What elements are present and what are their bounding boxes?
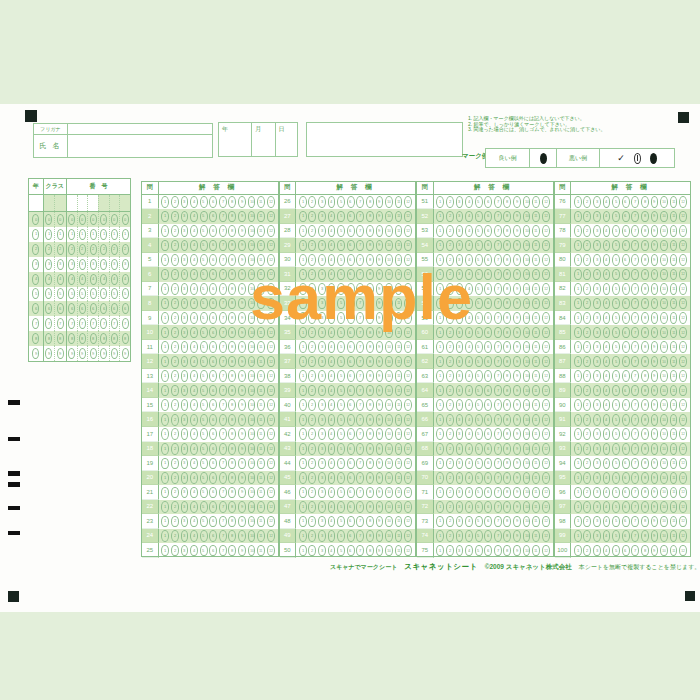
answer-bubble[interactable]: 1 — [574, 458, 582, 470]
answer-bubble[interactable]: 3 — [181, 254, 189, 266]
answer-bubble[interactable]: 8 — [366, 385, 374, 397]
answer-bubble[interactable]: 4 — [190, 545, 198, 557]
answer-bubble[interactable]: 6 — [622, 341, 630, 353]
answer-bubble[interactable]: 8 — [641, 545, 649, 557]
answer-bubble[interactable]: 7 — [494, 399, 502, 411]
answer-bubble[interactable]: 9 — [651, 196, 659, 208]
answer-bubble[interactable]: 9 — [513, 211, 521, 223]
answer-bubble[interactable]: 12 — [542, 458, 550, 470]
answer-bubble[interactable]: 6 — [209, 458, 217, 470]
answer-bubble[interactable]: 1 — [436, 196, 444, 208]
answer-bubble[interactable]: 5 — [200, 458, 208, 470]
answer-bubble[interactable]: 10 — [523, 458, 531, 470]
answer-bubble[interactable]: 6 — [209, 370, 217, 382]
digit-bubble[interactable]: 2 — [79, 244, 86, 255]
answer-bubble[interactable]: 5 — [612, 341, 620, 353]
answer-bubble[interactable]: 9 — [513, 312, 521, 324]
answer-bubble[interactable]: 7 — [631, 254, 639, 266]
digit-bubble[interactable]: 9 — [45, 348, 52, 359]
answer-bubble[interactable]: 5 — [612, 428, 620, 440]
answer-bubble[interactable]: 9 — [513, 458, 521, 470]
answer-bubble[interactable]: 7 — [494, 196, 502, 208]
answer-bubble[interactable]: 12 — [267, 356, 275, 368]
answer-bubble[interactable]: 10 — [385, 341, 393, 353]
answer-bubble[interactable]: 1 — [299, 385, 307, 397]
answer-bubble[interactable]: 3 — [456, 414, 464, 426]
answer-bubble[interactable]: 1 — [299, 458, 307, 470]
answer-bubble[interactable]: 3 — [181, 240, 189, 252]
answer-bubble[interactable]: 2 — [583, 298, 591, 310]
digit-bubble[interactable]: 9 — [100, 348, 107, 359]
answer-bubble[interactable]: 2 — [171, 545, 179, 557]
answer-bubble[interactable]: 10 — [523, 487, 531, 499]
answer-bubble[interactable]: 7 — [219, 458, 227, 470]
answer-bubble[interactable]: 7 — [494, 341, 502, 353]
answer-bubble[interactable]: 2 — [171, 356, 179, 368]
answer-bubble[interactable]: 11 — [257, 516, 265, 528]
answer-bubble[interactable]: 11 — [257, 443, 265, 455]
answer-bubble[interactable]: 2 — [583, 269, 591, 281]
answer-bubble[interactable]: 1 — [436, 516, 444, 528]
answer-bubble[interactable]: 2 — [446, 545, 454, 557]
answer-bubble[interactable]: 9 — [376, 370, 384, 382]
answer-bubble[interactable]: 3 — [181, 487, 189, 499]
answer-bubble[interactable]: 10 — [248, 414, 256, 426]
answer-bubble[interactable]: 7 — [631, 341, 639, 353]
answer-bubble[interactable]: 6 — [622, 283, 630, 295]
answer-bubble[interactable]: 3 — [181, 385, 189, 397]
answer-bubble[interactable]: 5 — [612, 487, 620, 499]
answer-bubble[interactable]: 6 — [484, 196, 492, 208]
answer-bubble[interactable]: 9 — [513, 472, 521, 484]
answer-bubble[interactable]: 11 — [670, 530, 678, 542]
answer-bubble[interactable]: 6 — [209, 196, 217, 208]
answer-bubble[interactable]: 12 — [267, 516, 275, 528]
digit-bubble[interactable]: 7 — [111, 318, 118, 329]
answer-bubble[interactable]: 5 — [200, 443, 208, 455]
answer-bubble[interactable]: 2 — [583, 399, 591, 411]
answer-bubble[interactable]: 5 — [612, 211, 620, 223]
answer-bubble[interactable]: 8 — [503, 472, 511, 484]
answer-bubble[interactable]: 2 — [583, 545, 591, 557]
answer-bubble[interactable]: 3 — [318, 428, 326, 440]
answer-bubble[interactable]: 7 — [219, 501, 227, 513]
answer-bubble[interactable]: 9 — [238, 269, 246, 281]
answer-bubble[interactable]: 4 — [190, 211, 198, 223]
answer-bubble[interactable]: 4 — [328, 516, 336, 528]
answer-bubble[interactable]: 10 — [523, 240, 531, 252]
answer-bubble[interactable]: 1 — [574, 312, 582, 324]
answer-bubble[interactable]: 1 — [436, 545, 444, 557]
answer-bubble[interactable]: 3 — [456, 196, 464, 208]
answer-bubble[interactable]: 8 — [503, 298, 511, 310]
answer-bubble[interactable]: 4 — [603, 298, 611, 310]
answer-bubble[interactable]: 4 — [190, 501, 198, 513]
answer-bubble[interactable]: 11 — [395, 414, 403, 426]
answer-bubble[interactable]: 8 — [503, 240, 511, 252]
answer-bubble[interactable]: 11 — [532, 269, 540, 281]
answer-bubble[interactable]: 1 — [161, 545, 169, 557]
answer-bubble[interactable]: 6 — [622, 472, 630, 484]
answer-bubble[interactable]: 10 — [385, 196, 393, 208]
digit-bubble[interactable]: 3 — [100, 259, 107, 270]
answer-bubble[interactable]: 9 — [238, 341, 246, 353]
answer-bubble[interactable]: 9 — [376, 472, 384, 484]
answer-bubble[interactable]: 11 — [257, 356, 265, 368]
answer-bubble[interactable]: 11 — [532, 356, 540, 368]
answer-bubble[interactable]: 12 — [542, 414, 550, 426]
answer-bubble[interactable]: 8 — [503, 399, 511, 411]
answer-bubble[interactable]: 10 — [385, 240, 393, 252]
answer-bubble[interactable]: 12 — [542, 211, 550, 223]
digit-bubble[interactable]: 6 — [111, 303, 118, 314]
digit-bubble[interactable]: 7 — [68, 318, 75, 329]
answer-bubble[interactable]: 5 — [475, 283, 483, 295]
answer-bubble[interactable]: 8 — [641, 385, 649, 397]
answer-bubble[interactable]: 11 — [670, 472, 678, 484]
answer-bubble[interactable]: 9 — [238, 298, 246, 310]
answer-bubble[interactable]: 11 — [670, 516, 678, 528]
answer-bubble[interactable]: 4 — [190, 269, 198, 281]
answer-bubble[interactable]: 12 — [542, 399, 550, 411]
answer-bubble[interactable]: 10 — [660, 341, 668, 353]
digit-bubble[interactable]: 7 — [100, 318, 107, 329]
answer-bubble[interactable]: 12 — [679, 472, 687, 484]
answer-bubble[interactable]: 11 — [257, 196, 265, 208]
answer-bubble[interactable]: 9 — [376, 341, 384, 353]
answer-bubble[interactable]: 7 — [631, 240, 639, 252]
answer-bubble[interactable]: 11 — [670, 399, 678, 411]
answer-bubble[interactable]: 5 — [200, 341, 208, 353]
answer-bubble[interactable]: 8 — [503, 327, 511, 339]
answer-bubble[interactable]: 7 — [631, 472, 639, 484]
digit-bubble[interactable]: 6 — [100, 303, 107, 314]
answer-bubble[interactable]: 1 — [299, 545, 307, 557]
answer-bubble[interactable]: 2 — [308, 472, 316, 484]
answer-bubble[interactable]: 12 — [542, 312, 550, 324]
answer-bubble[interactable]: 10 — [523, 254, 531, 266]
answer-bubble[interactable]: 12 — [542, 443, 550, 455]
digit-bubble[interactable]: 1 — [122, 229, 129, 240]
digit-bubble[interactable]: 4 — [45, 274, 52, 285]
answer-bubble[interactable]: 10 — [523, 269, 531, 281]
answer-bubble[interactable]: 3 — [456, 385, 464, 397]
answer-bubble[interactable]: 1 — [161, 240, 169, 252]
answer-bubble[interactable]: 5 — [200, 545, 208, 557]
answer-bubble[interactable]: 1 — [436, 530, 444, 542]
answer-bubble[interactable]: 6 — [622, 414, 630, 426]
answer-bubble[interactable]: 10 — [660, 545, 668, 557]
answer-bubble[interactable]: 10 — [660, 370, 668, 382]
digit-bubble[interactable]: 0 — [45, 214, 52, 225]
digit-bubble[interactable]: 9 — [32, 348, 39, 359]
answer-bubble[interactable]: 11 — [395, 530, 403, 542]
answer-bubble[interactable]: 8 — [503, 269, 511, 281]
answer-bubble[interactable]: 11 — [257, 501, 265, 513]
answer-bubble[interactable]: 4 — [465, 356, 473, 368]
answer-bubble[interactable]: 11 — [532, 458, 540, 470]
answer-bubble[interactable]: 2 — [446, 225, 454, 237]
answer-bubble[interactable]: 7 — [219, 254, 227, 266]
answer-bubble[interactable]: 4 — [190, 487, 198, 499]
answer-bubble[interactable]: 9 — [376, 487, 384, 499]
answer-bubble[interactable]: 11 — [257, 428, 265, 440]
answer-bubble[interactable]: 1 — [574, 428, 582, 440]
answer-bubble[interactable]: 8 — [641, 370, 649, 382]
answer-bubble[interactable]: 3 — [456, 487, 464, 499]
digit-bubble[interactable]: 5 — [100, 288, 107, 299]
answer-bubble[interactable]: 8 — [366, 501, 374, 513]
answer-bubble[interactable]: 7 — [631, 414, 639, 426]
write-in-cell[interactable] — [66, 195, 77, 211]
answer-bubble[interactable]: 7 — [356, 399, 364, 411]
answer-bubble[interactable]: 10 — [523, 501, 531, 513]
answer-bubble[interactable]: 1 — [161, 516, 169, 528]
answer-bubble[interactable]: 4 — [190, 312, 198, 324]
digit-bubble[interactable]: 4 — [32, 274, 39, 285]
write-in-cell[interactable] — [43, 195, 55, 211]
answer-bubble[interactable]: 3 — [593, 341, 601, 353]
answer-bubble[interactable]: 2 — [446, 487, 454, 499]
answer-bubble[interactable]: 12 — [679, 399, 687, 411]
answer-bubble[interactable]: 4 — [603, 254, 611, 266]
answer-bubble[interactable]: 8 — [228, 240, 236, 252]
digit-bubble[interactable]: 5 — [90, 288, 97, 299]
answer-bubble[interactable]: 12 — [542, 370, 550, 382]
answer-bubble[interactable]: 6 — [209, 472, 217, 484]
answer-bubble[interactable]: 6 — [209, 298, 217, 310]
answer-bubble[interactable]: 1 — [299, 472, 307, 484]
digit-bubble[interactable]: 6 — [90, 303, 97, 314]
answer-bubble[interactable]: 1 — [436, 385, 444, 397]
answer-bubble[interactable]: 2 — [446, 443, 454, 455]
answer-bubble[interactable]: 1 — [299, 240, 307, 252]
answer-bubble[interactable]: 9 — [376, 356, 384, 368]
answer-bubble[interactable]: 12 — [679, 458, 687, 470]
answer-bubble[interactable]: 1 — [299, 225, 307, 237]
answer-bubble[interactable]: 10 — [385, 487, 393, 499]
answer-bubble[interactable]: 8 — [228, 545, 236, 557]
answer-bubble[interactable]: 3 — [318, 399, 326, 411]
answer-bubble[interactable]: 5 — [612, 269, 620, 281]
answer-bubble[interactable]: 12 — [679, 269, 687, 281]
answer-bubble[interactable]: 11 — [532, 196, 540, 208]
answer-bubble[interactable]: 7 — [219, 399, 227, 411]
answer-bubble[interactable]: 2 — [446, 211, 454, 223]
answer-bubble[interactable]: 9 — [651, 530, 659, 542]
answer-bubble[interactable]: 7 — [219, 240, 227, 252]
answer-bubble[interactable]: 6 — [347, 385, 355, 397]
answer-bubble[interactable]: 5 — [200, 240, 208, 252]
answer-bubble[interactable]: 2 — [308, 196, 316, 208]
answer-bubble[interactable]: 2 — [308, 240, 316, 252]
answer-bubble[interactable]: 10 — [523, 283, 531, 295]
answer-bubble[interactable]: 2 — [446, 399, 454, 411]
answer-bubble[interactable]: 5 — [475, 487, 483, 499]
answer-bubble[interactable]: 1 — [574, 385, 582, 397]
answer-bubble[interactable]: 8 — [503, 458, 511, 470]
answer-bubble[interactable]: 5 — [475, 516, 483, 528]
answer-bubble[interactable]: 2 — [171, 428, 179, 440]
answer-bubble[interactable]: 12 — [267, 428, 275, 440]
answer-bubble[interactable]: 9 — [513, 399, 521, 411]
answer-bubble[interactable]: 6 — [484, 414, 492, 426]
answer-bubble[interactable]: 2 — [583, 312, 591, 324]
answer-bubble[interactable]: 5 — [337, 196, 345, 208]
answer-bubble[interactable]: 5 — [612, 414, 620, 426]
answer-bubble[interactable]: 5 — [612, 545, 620, 557]
answer-bubble[interactable]: 2 — [446, 530, 454, 542]
answer-bubble[interactable]: 5 — [337, 356, 345, 368]
answer-bubble[interactable]: 7 — [356, 472, 364, 484]
answer-bubble[interactable]: 3 — [181, 356, 189, 368]
answer-bubble[interactable]: 3 — [456, 428, 464, 440]
answer-bubble[interactable]: 9 — [651, 370, 659, 382]
write-in-cell[interactable] — [119, 195, 130, 211]
answer-bubble[interactable]: 8 — [641, 356, 649, 368]
answer-bubble[interactable]: 9 — [513, 269, 521, 281]
answer-bubble[interactable]: 10 — [660, 327, 668, 339]
answer-bubble[interactable]: 9 — [376, 428, 384, 440]
answer-bubble[interactable]: 6 — [209, 399, 217, 411]
answer-bubble[interactable]: 9 — [651, 327, 659, 339]
answer-bubble[interactable]: 2 — [583, 225, 591, 237]
digit-bubble[interactable]: 5 — [45, 288, 52, 299]
digit-bubble[interactable]: 3 — [57, 259, 64, 270]
answer-bubble[interactable]: 11 — [257, 530, 265, 542]
answer-bubble[interactable]: 5 — [475, 225, 483, 237]
answer-bubble[interactable]: 6 — [347, 211, 355, 223]
answer-bubble[interactable]: 4 — [603, 545, 611, 557]
answer-bubble[interactable]: 1 — [574, 298, 582, 310]
answer-bubble[interactable]: 9 — [651, 385, 659, 397]
answer-bubble[interactable]: 3 — [181, 399, 189, 411]
answer-bubble[interactable]: 7 — [219, 530, 227, 542]
answer-bubble[interactable]: 2 — [308, 225, 316, 237]
answer-bubble[interactable]: 3 — [456, 501, 464, 513]
answer-bubble[interactable]: 11 — [670, 428, 678, 440]
answer-bubble[interactable]: 1 — [161, 428, 169, 440]
answer-bubble[interactable]: 6 — [209, 428, 217, 440]
answer-bubble[interactable]: 11 — [395, 428, 403, 440]
answer-bubble[interactable]: 12 — [679, 530, 687, 542]
digit-bubble[interactable]: 4 — [90, 274, 97, 285]
answer-bubble[interactable]: 3 — [593, 211, 601, 223]
answer-bubble[interactable]: 3 — [181, 225, 189, 237]
answer-bubble[interactable]: 8 — [366, 472, 374, 484]
answer-bubble[interactable]: 2 — [171, 269, 179, 281]
answer-bubble[interactable]: 7 — [494, 545, 502, 557]
answer-bubble[interactable]: 10 — [523, 399, 531, 411]
answer-bubble[interactable]: 4 — [190, 428, 198, 440]
answer-bubble[interactable]: 8 — [641, 443, 649, 455]
answer-bubble[interactable]: 12 — [404, 370, 412, 382]
month-field[interactable]: 月 — [251, 123, 274, 156]
answer-bubble[interactable]: 1 — [299, 501, 307, 513]
answer-bubble[interactable]: 12 — [679, 443, 687, 455]
answer-bubble[interactable]: 10 — [523, 516, 531, 528]
answer-bubble[interactable]: 5 — [612, 399, 620, 411]
answer-bubble[interactable]: 10 — [660, 516, 668, 528]
answer-bubble[interactable]: 11 — [670, 458, 678, 470]
answer-bubble[interactable]: 3 — [593, 428, 601, 440]
answer-bubble[interactable]: 2 — [583, 487, 591, 499]
answer-bubble[interactable]: 12 — [542, 356, 550, 368]
answer-bubble[interactable]: 7 — [631, 501, 639, 513]
answer-bubble[interactable]: 6 — [209, 269, 217, 281]
answer-bubble[interactable]: 3 — [318, 443, 326, 455]
answer-bubble[interactable]: 4 — [190, 516, 198, 528]
answer-bubble[interactable]: 1 — [299, 211, 307, 223]
digit-bubble[interactable]: 3 — [45, 259, 52, 270]
answer-bubble[interactable]: 9 — [651, 399, 659, 411]
answer-bubble[interactable]: 9 — [238, 428, 246, 440]
answer-bubble[interactable]: 9 — [513, 414, 521, 426]
answer-bubble[interactable]: 9 — [238, 501, 246, 513]
answer-bubble[interactable]: 1 — [574, 516, 582, 528]
answer-bubble[interactable]: 6 — [622, 516, 630, 528]
answer-bubble[interactable]: 11 — [670, 254, 678, 266]
answer-bubble[interactable]: 11 — [532, 487, 540, 499]
answer-bubble[interactable]: 7 — [219, 341, 227, 353]
answer-bubble[interactable]: 9 — [651, 312, 659, 324]
answer-bubble[interactable]: 8 — [503, 443, 511, 455]
answer-bubble[interactable]: 6 — [347, 487, 355, 499]
answer-bubble[interactable]: 6 — [484, 225, 492, 237]
answer-bubble[interactable]: 5 — [612, 312, 620, 324]
answer-bubble[interactable]: 8 — [641, 516, 649, 528]
answer-bubble[interactable]: 2 — [583, 472, 591, 484]
answer-bubble[interactable]: 8 — [228, 254, 236, 266]
answer-bubble[interactable]: 12 — [404, 516, 412, 528]
answer-bubble[interactable]: 4 — [328, 211, 336, 223]
digit-bubble[interactable]: 1 — [100, 229, 107, 240]
answer-bubble[interactable]: 8 — [641, 487, 649, 499]
answer-bubble[interactable]: 8 — [503, 283, 511, 295]
answer-bubble[interactable]: 7 — [494, 414, 502, 426]
answer-bubble[interactable]: 10 — [248, 428, 256, 440]
answer-bubble[interactable]: 1 — [574, 399, 582, 411]
answer-bubble[interactable]: 1 — [161, 487, 169, 499]
answer-bubble[interactable]: 1 — [161, 211, 169, 223]
answer-bubble[interactable]: 9 — [376, 530, 384, 542]
answer-bubble[interactable]: 7 — [219, 298, 227, 310]
answer-bubble[interactable]: 1 — [299, 516, 307, 528]
answer-bubble[interactable]: 3 — [318, 545, 326, 557]
answer-bubble[interactable]: 12 — [679, 370, 687, 382]
answer-bubble[interactable]: 10 — [385, 356, 393, 368]
answer-bubble[interactable]: 2 — [308, 458, 316, 470]
answer-bubble[interactable]: 9 — [376, 399, 384, 411]
answer-bubble[interactable]: 8 — [503, 487, 511, 499]
answer-bubble[interactable]: 7 — [219, 545, 227, 557]
answer-bubble[interactable]: 1 — [436, 211, 444, 223]
answer-bubble[interactable]: 10 — [385, 530, 393, 542]
answer-bubble[interactable]: 6 — [484, 312, 492, 324]
answer-bubble[interactable]: 10 — [248, 240, 256, 252]
answer-bubble[interactable]: 1 — [574, 240, 582, 252]
answer-bubble[interactable]: 4 — [603, 211, 611, 223]
answer-bubble[interactable]: 1 — [299, 414, 307, 426]
answer-bubble[interactable]: 7 — [219, 283, 227, 295]
write-in-cell[interactable] — [87, 195, 98, 211]
answer-bubble[interactable]: 12 — [542, 530, 550, 542]
answer-bubble[interactable]: 12 — [404, 385, 412, 397]
answer-bubble[interactable]: 2 — [583, 414, 591, 426]
answer-bubble[interactable]: 3 — [318, 356, 326, 368]
answer-bubble[interactable]: 5 — [200, 399, 208, 411]
answer-bubble[interactable]: 2 — [308, 399, 316, 411]
